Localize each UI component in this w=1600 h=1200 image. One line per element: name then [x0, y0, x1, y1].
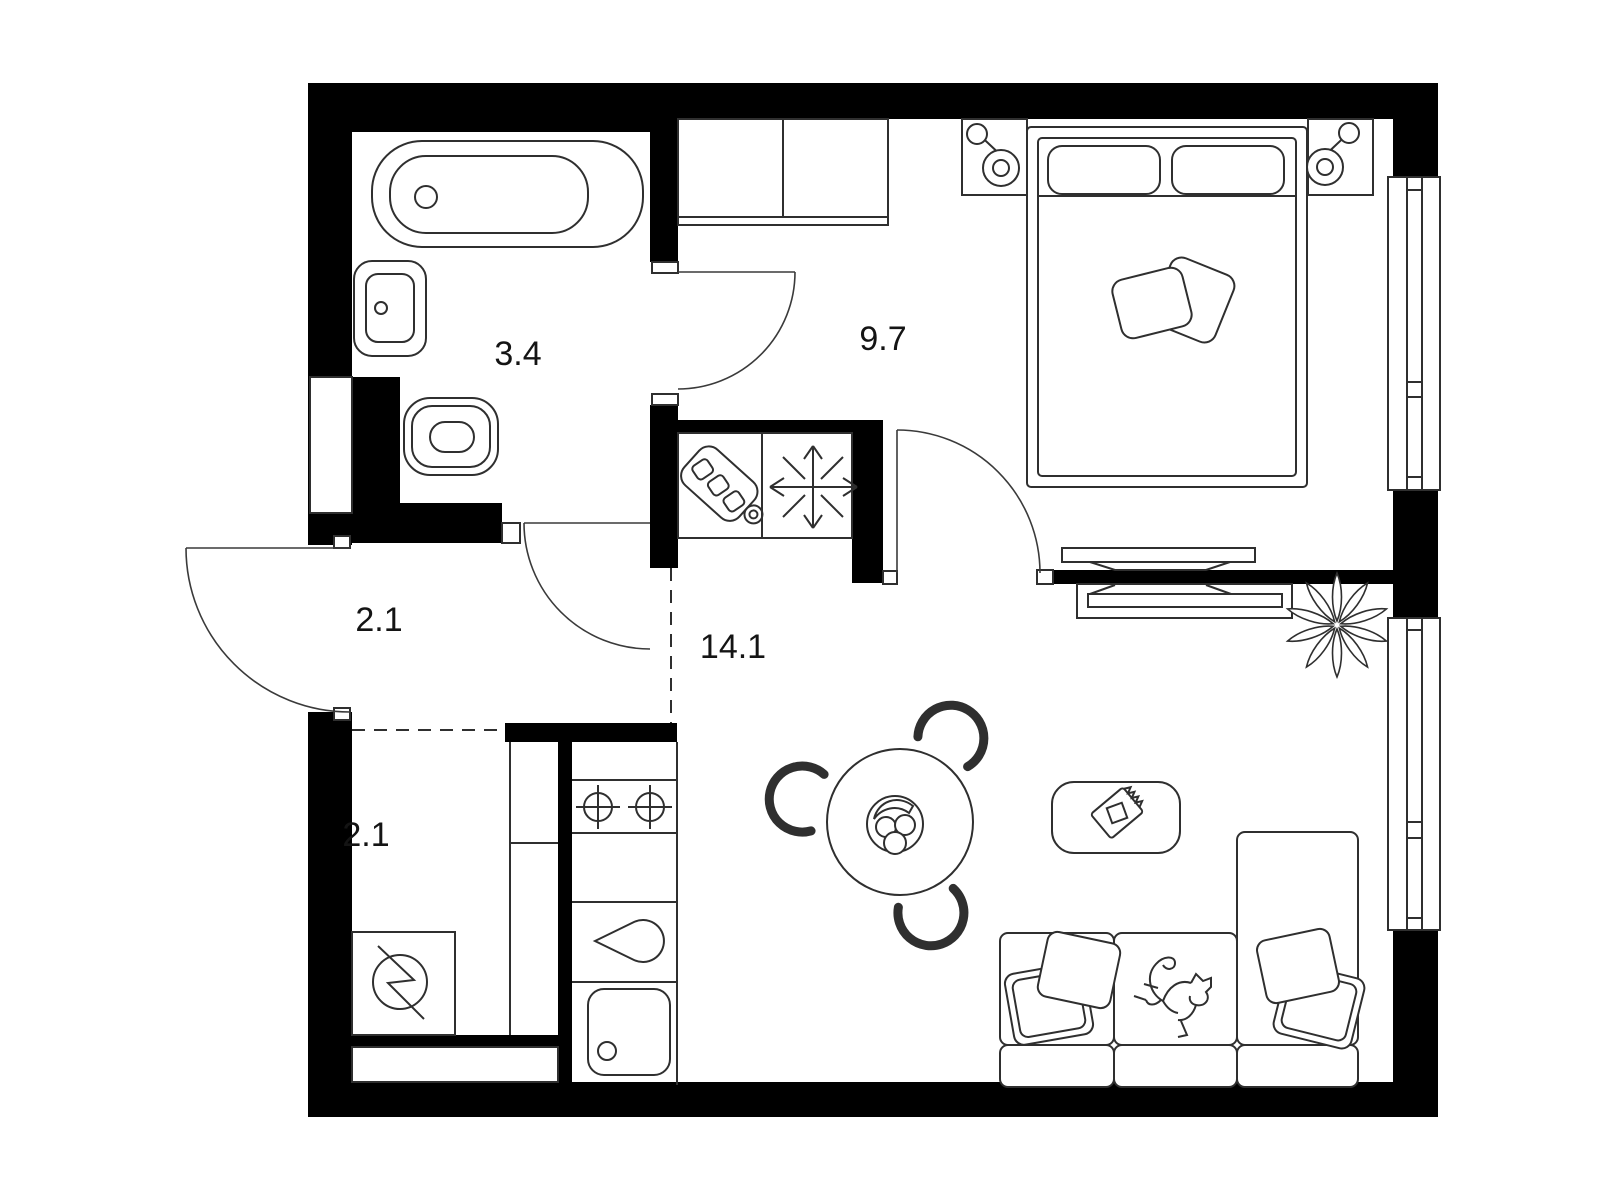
room-label-hallway: 2.1	[355, 601, 402, 639]
entrance-door-swing-icon	[186, 548, 350, 712]
dining-chair-icon	[895, 887, 973, 955]
bed-pillow-icon	[1172, 146, 1284, 194]
plant-icon	[1286, 573, 1388, 677]
kitchen-faucet-icon	[595, 920, 664, 962]
kitchen-sink-icon	[588, 989, 670, 1075]
nightstand-right-icon	[1307, 119, 1373, 195]
wardrobe-icon	[678, 119, 888, 225]
tv-icon	[1088, 594, 1282, 607]
bedroom-tv-icon	[1062, 548, 1255, 570]
bedroom-door-swing-icon	[897, 430, 1040, 573]
corner-sofa-icon	[1000, 832, 1367, 1087]
floor-plan-canvas: 3.4 9.7 2.1 14.1 2.1	[0, 0, 1600, 1200]
entry-cabinet	[352, 1047, 558, 1082]
room-label-bedroom: 9.7	[859, 320, 906, 358]
sofa-pillow-icon	[1036, 930, 1122, 1010]
room-label-storage: 2.1	[342, 816, 389, 854]
sofa-pillow-icon	[1255, 927, 1341, 1005]
washbasin-icon	[354, 261, 426, 356]
toilet-icon	[404, 398, 498, 475]
bathtub-icon	[372, 141, 643, 247]
floor-plan-page: 3.4 9.7 2.1 14.1 2.1	[0, 0, 1600, 1200]
dining-chair-icon	[763, 759, 825, 834]
corridor-door-swing-icon	[678, 272, 795, 389]
bedroom-window-icon	[1388, 177, 1440, 490]
living-tv-console-icon	[1077, 584, 1292, 618]
room-label-living-kitchen: 14.1	[700, 628, 766, 666]
double-bed-icon	[1027, 127, 1307, 487]
living-window-icon	[1388, 618, 1440, 930]
plumbing-shaft-icon	[310, 377, 352, 513]
dining-table-icon	[827, 749, 973, 895]
nightstand-left-icon	[962, 119, 1027, 195]
bed-pillow-icon	[1048, 146, 1160, 194]
coffee-table-icon	[1052, 782, 1180, 853]
fruit-bowl-icon	[867, 796, 923, 854]
storage-shelf-icon	[510, 742, 558, 1035]
washing-machine-icon	[352, 932, 455, 1035]
bathroom-door-swing-icon	[524, 523, 650, 649]
room-label-bathroom: 3.4	[494, 335, 541, 373]
hob-icon	[576, 785, 672, 829]
